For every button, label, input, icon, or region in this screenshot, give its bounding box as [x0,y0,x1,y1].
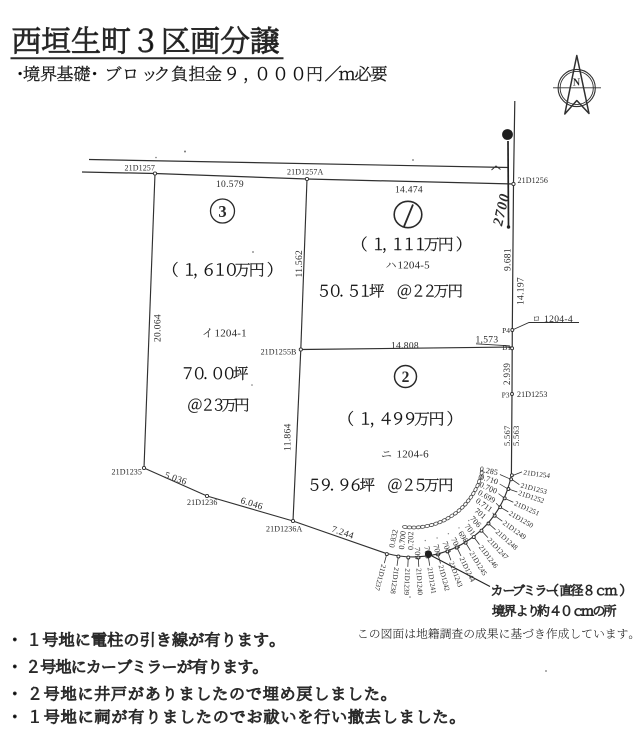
svg-text:21D1253: 21D1253 [517,390,547,399]
svg-text:14.197: 14.197 [517,277,527,305]
svg-text:10.579: 10.579 [216,180,244,190]
svg-text:21D1255B: 21D1255B [261,348,297,357]
svg-text:2: 2 [402,369,410,386]
svg-text:20.064: 20.064 [154,314,164,342]
svg-text:11.864: 11.864 [284,423,294,451]
svg-text:21D1236: 21D1236 [187,498,217,507]
svg-text:21D1239: 21D1239 [402,568,411,596]
svg-text:21D1257: 21D1257 [125,164,155,173]
svg-text:1204-1: 1204-1 [215,328,247,340]
svg-text:P4: P4 [502,326,510,335]
svg-text:21D1257A: 21D1257A [287,168,323,177]
svg-text:1,573: 1,573 [476,336,499,346]
svg-text:9.681: 9.681 [504,248,514,271]
svg-text:21D1240: 21D1240 [415,568,424,596]
svg-text:N: N [573,78,581,89]
svg-text:3: 3 [218,202,226,221]
svg-text:0.702: 0.702 [406,531,415,550]
svg-text:21D1236A: 21D1236A [266,525,302,534]
svg-text:14.808: 14.808 [391,342,419,352]
svg-text:11.562: 11.562 [295,250,305,278]
svg-text:1204-6: 1204-6 [397,449,430,461]
svg-text:B1: B1 [502,343,511,352]
svg-text:21D1235: 21D1235 [112,468,142,477]
svg-text:21D1256: 21D1256 [518,176,548,185]
svg-text:P3: P3 [502,391,510,400]
svg-text:2.939: 2.939 [502,363,512,385]
svg-text:1204-5: 1204-5 [398,260,431,272]
svg-text:1204-4: 1204-4 [544,314,573,325]
svg-text:5.563: 5.563 [511,425,521,446]
svg-text:14.474: 14.474 [395,186,423,196]
